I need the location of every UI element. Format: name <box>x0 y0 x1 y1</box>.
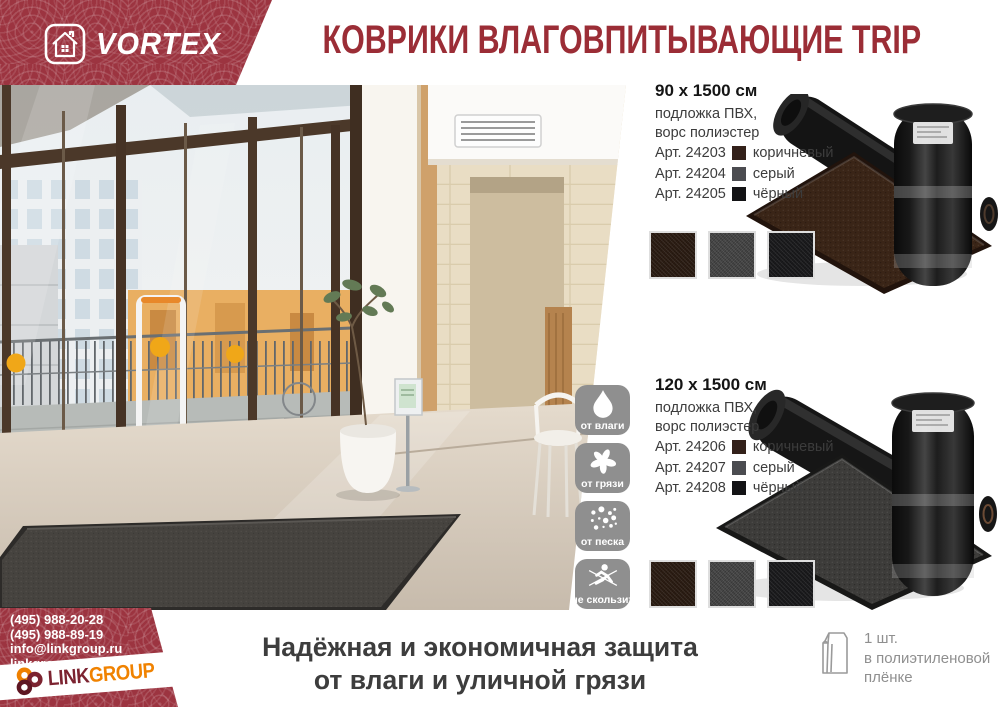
product-spec: подложка ПВХ, <box>655 399 855 418</box>
color-chip <box>732 146 746 160</box>
texture-swatches-120 <box>649 560 815 608</box>
swatch-brown <box>649 560 697 608</box>
variant-art: Арт. 24206 <box>655 437 726 458</box>
page-title: КОВРИКИ ВЛАГОВПИТЫВАЮЩИЕ TRIP <box>262 0 982 80</box>
entrance-photo-art <box>0 85 630 610</box>
feature-tile-sand: от песка <box>575 501 630 551</box>
slogan-line-2: от влаги и уличной грязи <box>210 664 750 697</box>
water-drop-icon <box>588 388 618 420</box>
glass-dot <box>7 354 26 373</box>
variant-art: Арт. 24207 <box>655 458 726 479</box>
feature-label: от грязи <box>581 478 624 490</box>
air-vent <box>455 115 541 147</box>
variant-color-name: чёрный <box>753 184 803 205</box>
swatch-brown <box>649 231 697 279</box>
brand-name: VORTEX <box>96 26 221 62</box>
swatch-black <box>767 231 815 279</box>
no-slip-icon <box>588 562 618 594</box>
packaging-line: плёнке <box>864 668 990 688</box>
product-spec: подложка ПВХ, <box>655 105 855 124</box>
product-spec: ворс полиэстер <box>655 124 855 143</box>
feature-tile-noslip: не скользит <box>575 559 630 609</box>
color-chip <box>732 440 746 454</box>
color-chip <box>732 187 746 201</box>
package-bag-icon <box>818 629 850 677</box>
page-title-text: КОВРИКИ ВЛАГОВПИТЫВАЮЩИЕ TRIP <box>323 18 922 63</box>
swatch-gray <box>708 231 756 279</box>
linkgroup-wordmark: LINKGROUP <box>47 659 155 691</box>
variant-color-name: коричневый <box>753 143 834 164</box>
variant-art: Арт. 24204 <box>655 164 726 185</box>
variant-row: Арт. 24204 серый <box>655 164 855 185</box>
variant-art: Арт. 24203 <box>655 143 726 164</box>
feature-label: от песка <box>581 536 624 548</box>
sand-dots-icon <box>588 504 618 536</box>
product-size: 90 х 1500 см <box>655 81 855 101</box>
variant-color-name: серый <box>753 164 795 185</box>
slogan-line-1: Надёжная и экономичная защита <box>210 631 750 664</box>
variant-row: Арт. 24203 коричневый <box>655 143 855 164</box>
feature-badges: от влаги от грязи <box>575 385 630 617</box>
variant-row: Арт. 24206 коричневый <box>655 437 855 458</box>
swatch-black <box>767 560 815 608</box>
variant-row: Арт. 24205 чёрный <box>655 184 855 205</box>
variant-color-name: коричневый <box>753 437 834 458</box>
variant-row: Арт. 24208 чёрный <box>655 478 855 499</box>
color-chip <box>732 481 746 495</box>
glass-dot <box>226 345 244 363</box>
dirt-splat-icon <box>588 446 618 478</box>
variant-color-name: чёрный <box>753 478 803 499</box>
entrance-photo <box>0 85 630 610</box>
variant-art: Арт. 24208 <box>655 478 726 499</box>
glass-dot <box>150 337 170 357</box>
variant-row: Арт. 24207 серый <box>655 458 855 479</box>
texture-swatches-90 <box>649 231 815 279</box>
feature-tile-moisture: от влаги <box>575 385 630 435</box>
feature-label: не скользит <box>571 594 633 606</box>
phone-number: (495) 988-20-28 <box>10 613 190 628</box>
house-icon <box>44 23 86 65</box>
packaging-info: 1 шт. в полиэтиленовой плёнке <box>818 629 990 688</box>
variant-art: Арт. 24205 <box>655 184 726 205</box>
product-section-90: 90 х 1500 см подложка ПВХ, ворс полиэсте… <box>655 81 855 205</box>
linkgroup-rings-icon <box>13 664 45 696</box>
product-section-120: 120 х 1500 см подложка ПВХ, ворс полиэст… <box>655 375 855 499</box>
color-chip <box>732 461 746 475</box>
color-chip <box>732 167 746 181</box>
slogan: Надёжная и экономичная защита от влаги и… <box>210 631 750 697</box>
feature-label: от влаги <box>581 420 625 432</box>
feature-tile-dirt: от грязи <box>575 443 630 493</box>
phone-number: (495) 988-89-19 <box>10 628 190 643</box>
brand-header: VORTEX <box>0 0 280 85</box>
packaging-qty: 1 шт. <box>864 629 990 649</box>
product-spec: ворс полиэстер <box>655 418 855 437</box>
poster: VORTEX КОВРИКИ ВЛАГОВПИТЫВАЮЩИЕ TRIP от … <box>0 0 1000 707</box>
packaging-line: в полиэтиленовой <box>864 649 990 669</box>
variant-color-name: серый <box>753 458 795 479</box>
swatch-gray <box>708 560 756 608</box>
product-size: 120 х 1500 см <box>655 375 855 395</box>
